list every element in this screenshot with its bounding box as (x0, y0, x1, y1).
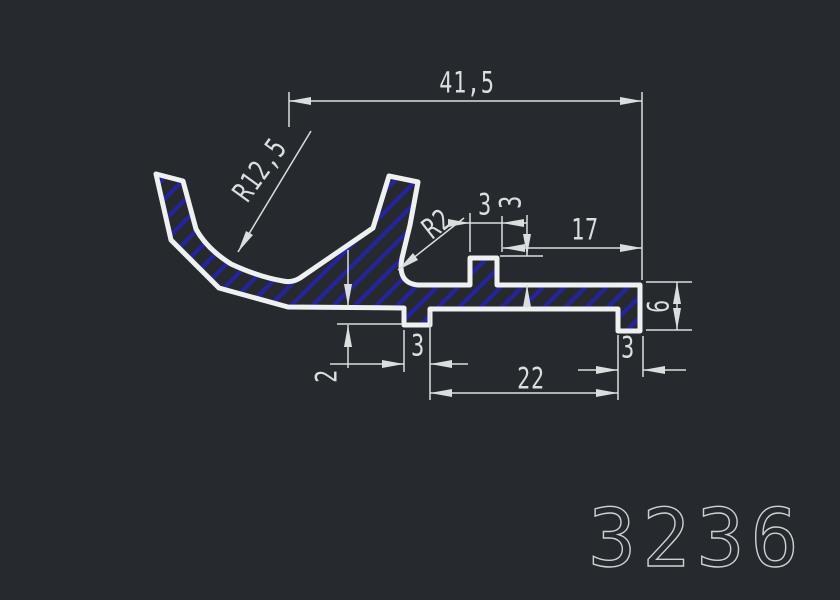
dim-label-foot-depth: 2 (313, 369, 342, 383)
dim-label-left-foot-width: 3 (411, 332, 425, 361)
dim-label-overall-width: 41,5 (439, 69, 494, 98)
drawing-geometry: 3236 (0, 0, 840, 600)
profile-outline (156, 174, 640, 331)
dim-label-tab-height: 3 (497, 195, 526, 209)
dim-label-right-foot-width: 3 (621, 334, 635, 363)
part-number: 3236 (588, 492, 805, 585)
dim-label-right-top-length: 17 (571, 216, 599, 245)
dim-label-feet-span: 22 (517, 365, 545, 394)
dim-label-right-end-height: 6 (645, 299, 674, 313)
dim-label-tab-width: 3 (478, 191, 492, 220)
dim-left-foot-width (330, 312, 468, 400)
cad-drawing-canvas: 3236 41,5 R12,5 R2 3 3 17 6 2 3 22 3 (0, 0, 840, 600)
